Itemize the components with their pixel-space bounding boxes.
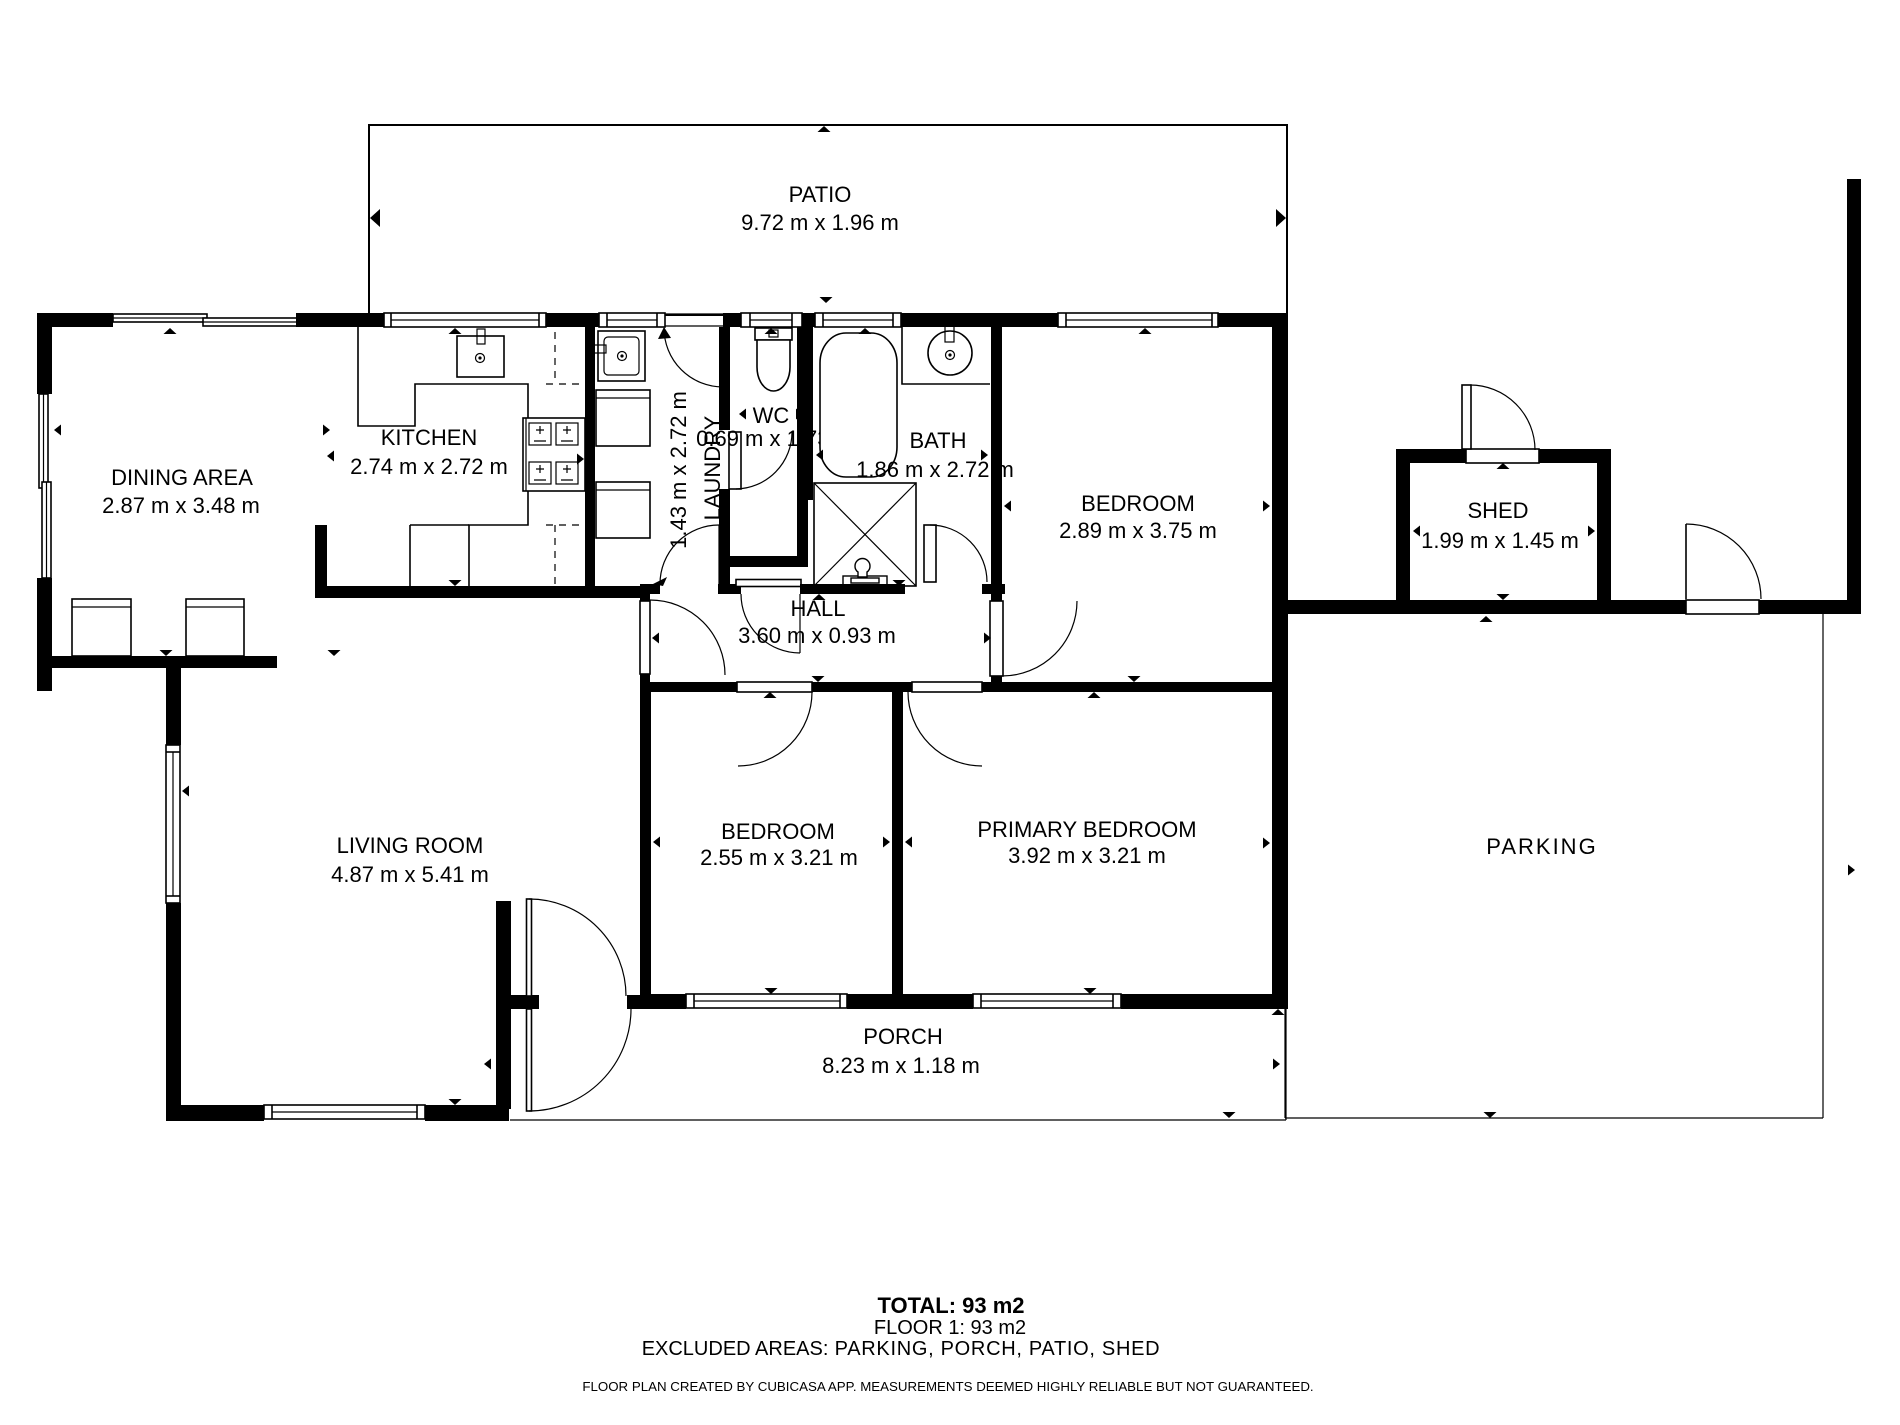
svg-text:2.74 m x 2.72 m: 2.74 m x 2.72 m xyxy=(350,454,508,479)
svg-text:4.87 m x 5.41 m: 4.87 m x 5.41 m xyxy=(331,862,489,887)
svg-text:KITCHEN: KITCHEN xyxy=(381,425,478,450)
svg-text:1.43 m x 2.72 m: 1.43 m x 2.72 m xyxy=(666,391,691,549)
svg-text:2.89 m x 3.75 m: 2.89 m x 3.75 m xyxy=(1059,518,1217,543)
svg-text:2.87 m x 3.48 m: 2.87 m x 3.48 m xyxy=(102,493,260,518)
svg-text:EXCLUDED AREAS: PARKING, PORCH: EXCLUDED AREAS: PARKING, PORCH, PATIO, S… xyxy=(642,1338,1161,1360)
svg-text:PRIMARY BEDROOM: PRIMARY BEDROOM xyxy=(977,817,1196,842)
svg-text:9.72 m x 1.96 m: 9.72 m x 1.96 m xyxy=(741,210,899,235)
svg-text:PATIO: PATIO xyxy=(789,182,852,207)
svg-text:WC: WC xyxy=(753,403,790,428)
svg-text:3.92 m x 3.21 m: 3.92 m x 3.21 m xyxy=(1008,843,1166,868)
svg-text:FLOOR 1: 93 m2: FLOOR 1: 93 m2 xyxy=(874,1317,1026,1339)
svg-text:PARKING: PARKING xyxy=(1486,834,1597,859)
svg-text:1.86 m x 2.72 m: 1.86 m x 2.72 m xyxy=(856,457,1014,482)
svg-text:1.99 m x 1.45 m: 1.99 m x 1.45 m xyxy=(1421,528,1579,553)
svg-text:TOTAL: 93 m2: TOTAL: 93 m2 xyxy=(877,1293,1024,1318)
svg-text:PORCH: PORCH xyxy=(863,1024,942,1049)
svg-text:FLOOR PLAN CREATED BY CUBICASA: FLOOR PLAN CREATED BY CUBICASA APP. MEAS… xyxy=(582,1379,1313,1394)
svg-text:BATH: BATH xyxy=(909,428,966,453)
svg-text:BEDROOM: BEDROOM xyxy=(1081,491,1195,516)
svg-text:2.55 m x 3.21 m: 2.55 m x 3.21 m xyxy=(700,845,858,870)
svg-text:SHED: SHED xyxy=(1467,498,1528,523)
svg-text:8.23 m x 1.18 m: 8.23 m x 1.18 m xyxy=(822,1053,980,1078)
svg-text:3.60 m x 0.93 m: 3.60 m x 0.93 m xyxy=(738,623,896,648)
svg-text:LIVING ROOM: LIVING ROOM xyxy=(337,833,484,858)
svg-text:DINING AREA: DINING AREA xyxy=(111,465,253,490)
svg-text:BEDROOM: BEDROOM xyxy=(721,819,835,844)
